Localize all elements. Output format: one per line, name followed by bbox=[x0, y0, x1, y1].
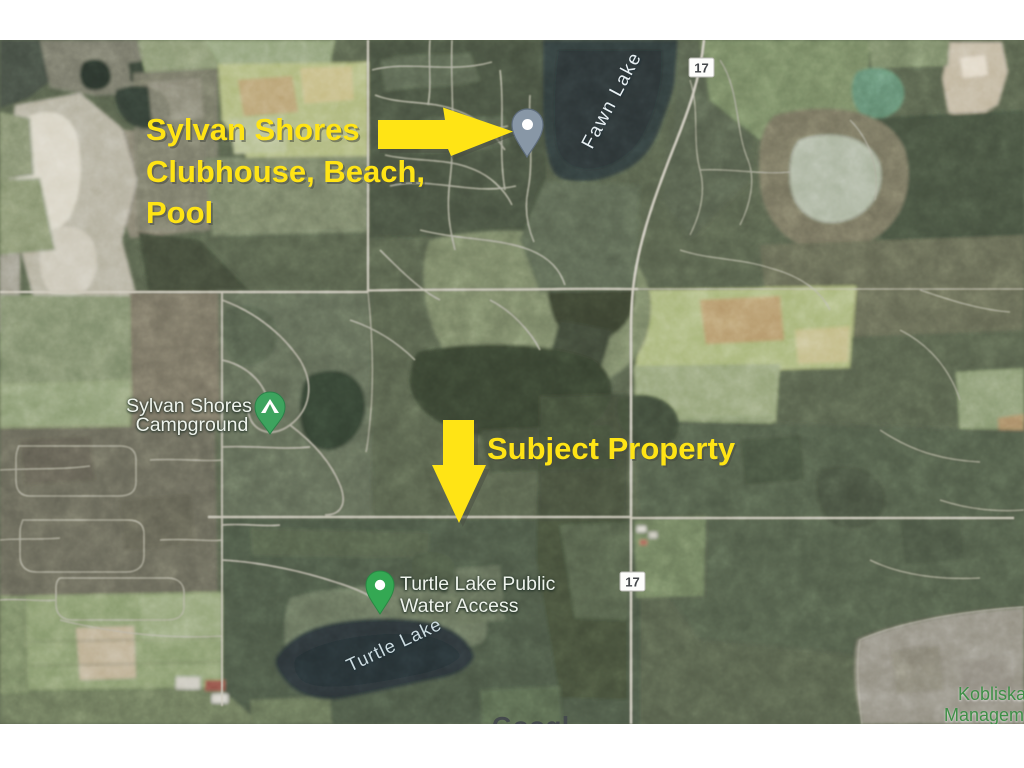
svg-text:Clubhouse, Beach,: Clubhouse, Beach, bbox=[146, 154, 425, 189]
svg-text:Managem: Managem bbox=[944, 705, 1024, 725]
svg-text:Turtle Lake Public: Turtle Lake Public bbox=[400, 573, 556, 595]
svg-text:17: 17 bbox=[625, 575, 639, 590]
svg-text:Subject Property: Subject Property bbox=[487, 431, 736, 466]
svg-text:Sylvan Shores: Sylvan Shores bbox=[146, 112, 360, 147]
svg-text:Kobliska: Kobliska bbox=[958, 684, 1024, 704]
svg-text:Campground: Campground bbox=[136, 414, 249, 436]
svg-text:Pool: Pool bbox=[146, 195, 213, 230]
svg-text:Water Access: Water Access bbox=[400, 595, 519, 617]
svg-text:17: 17 bbox=[694, 61, 708, 76]
